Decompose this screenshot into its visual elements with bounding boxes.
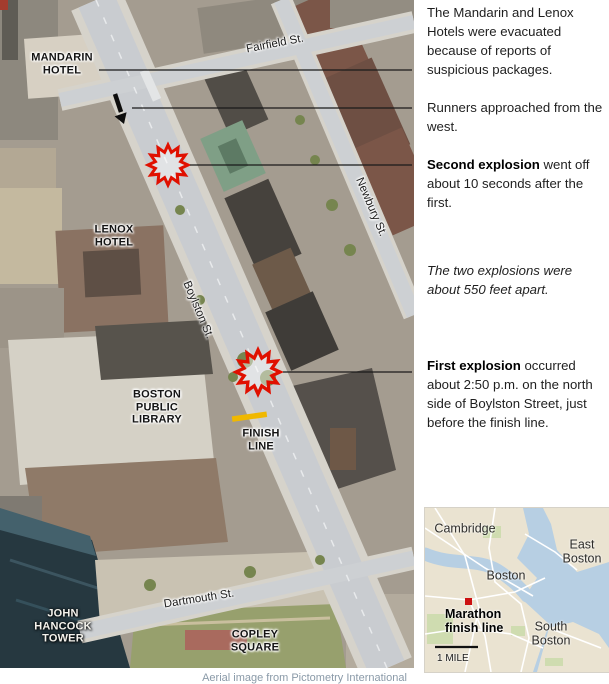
note-evacuation: The Mandarin and Lenox Hotels were evacu… [427, 3, 607, 79]
label-lenox-hotel: LENOX HOTEL [95, 224, 134, 249]
label-finish-line: FINISH LINE [242, 428, 279, 453]
note-runners: Runners approached from the west. [427, 98, 607, 136]
note-runners-text: Runners approached from the west. [427, 100, 602, 134]
note-evacuation-text: The Mandarin and Lenox Hotels were evacu… [427, 5, 574, 77]
aerial-map: MANDARIN HOTEL LENOX HOTEL BOSTON PUBLIC… [0, 0, 414, 668]
note-distance-text: The two explosions were about 550 feet a… [427, 263, 572, 297]
inset-locator-map: Cambridge East Boston Boston South Bosto… [425, 508, 609, 672]
label-mandarin-hotel: MANDARIN HOTEL [31, 52, 92, 77]
note-distance: The two explosions were about 550 feet a… [427, 261, 607, 299]
image-credit: Aerial image from Pictometry Internation… [0, 672, 609, 684]
label-john-hancock-tower: JOHN HANCOCK TOWER [34, 607, 92, 645]
label-copley-square: COPLEY SQUARE [231, 629, 279, 654]
inset-label-south-boston: South Boston [532, 621, 571, 648]
note-first-explosion: First explosion occurred about 2:50 p.m.… [427, 356, 607, 432]
inset-label-marathon-finish: Marathon finish line [445, 608, 503, 635]
note-second-explosion: Second explosion went off about 10 secon… [427, 155, 607, 212]
inset-label-boston: Boston [487, 569, 526, 583]
label-boston-public-library: BOSTON PUBLIC LIBRARY [132, 388, 182, 426]
inset-label-cambridge: Cambridge [434, 522, 495, 536]
finish-line-marker [465, 598, 472, 605]
infographic: MANDARIN HOTEL LENOX HOTEL BOSTON PUBLIC… [0, 0, 609, 679]
inset-label-scale: 1 MILE [437, 652, 469, 666]
note-second-explosion-lead: Second explosion [427, 157, 540, 172]
inset-label-east-boston: East Boston [563, 539, 602, 566]
note-first-explosion-lead: First explosion [427, 358, 521, 373]
